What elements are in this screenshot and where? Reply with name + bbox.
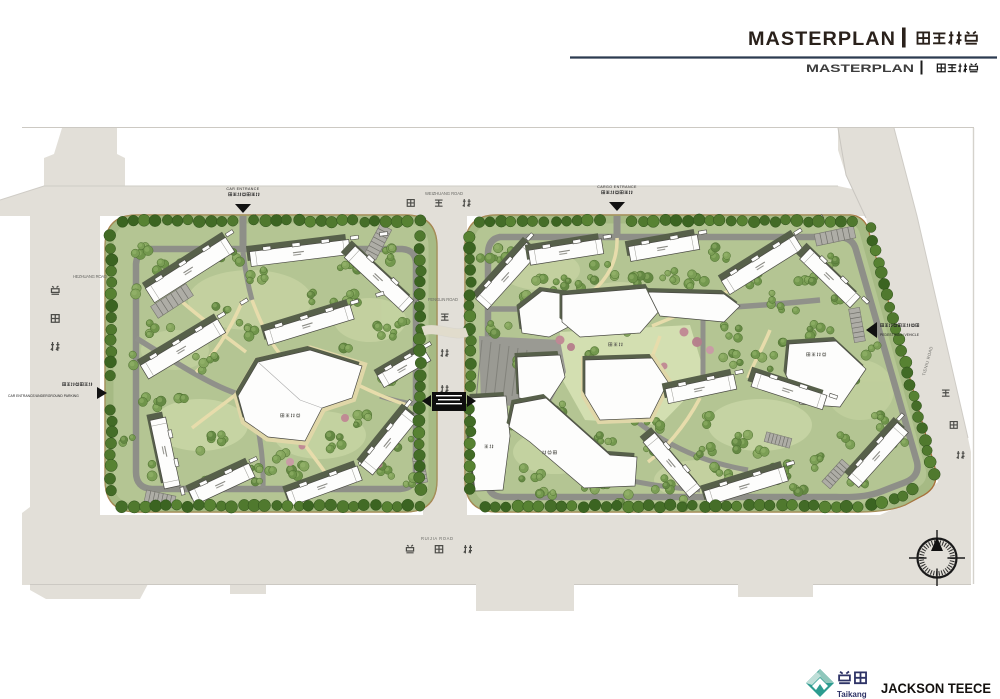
svg-text:PEDESTRIAN / VEHICLE: PEDESTRIAN / VEHICLE bbox=[880, 333, 920, 337]
svg-text:HEZHUANG ROAD: HEZHUANG ROAD bbox=[73, 274, 107, 279]
svg-text:CAR ENTRANCE: CAR ENTRANCE bbox=[226, 187, 259, 191]
svg-text:JACKSON TEECE: JACKSON TEECE bbox=[881, 681, 991, 696]
svg-text:MASTERPLAN: MASTERPLAN bbox=[748, 28, 896, 50]
svg-text:FENGLIN ROAD: FENGLIN ROAD bbox=[428, 297, 458, 302]
svg-text:Taikang: Taikang bbox=[837, 690, 867, 699]
svg-text:CAR ENTRANCE/UNDERGROUND PARKI: CAR ENTRANCE/UNDERGROUND PARKING bbox=[8, 394, 79, 398]
svg-text:RUIJIA ROAD: RUIJIA ROAD bbox=[421, 536, 453, 541]
svg-text:MASTERPLAN: MASTERPLAN bbox=[806, 63, 914, 75]
svg-text:WEIZHUANG ROAD: WEIZHUANG ROAD bbox=[425, 191, 463, 196]
svg-text:CARGO ENTRANCE: CARGO ENTRANCE bbox=[597, 185, 637, 189]
